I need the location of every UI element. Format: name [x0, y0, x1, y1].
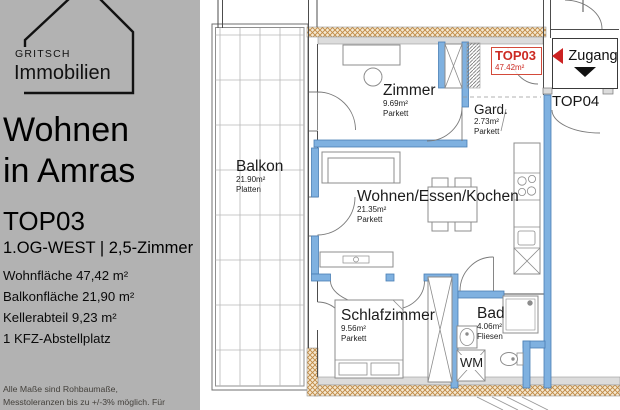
room-floor: Fliesen: [477, 332, 505, 342]
washing-machine-label: WM: [459, 355, 484, 370]
wall-hatch-left-column: [307, 348, 318, 396]
unit-tag-name: TOP03: [495, 49, 539, 63]
disclaimer-text: Alle Maße sind Rohbaumaße, Messtoleranze…: [3, 383, 165, 410]
room-label-zimmer: Zimmer 9.69m² Parkett: [383, 83, 436, 118]
room-area: 9.56m²: [341, 324, 435, 334]
sidebar: GRITSCH Immobilien Wohnen in Amras TOP03…: [0, 0, 200, 410]
floorplan: Balkon 21.90m² Platten Zimmer 9.69m² Par…: [200, 0, 620, 410]
toilet: [501, 353, 524, 366]
unit-tag-area: 47.42m²: [495, 63, 539, 72]
chair: [364, 68, 382, 86]
neighbor-unit-label: TOP04: [552, 93, 599, 110]
wall-gray-top: [318, 37, 543, 44]
brand-name-top: GRITSCH: [15, 48, 71, 60]
door-bad: [460, 257, 494, 291]
stairs-hatch: [477, 397, 548, 410]
wardrobe-zimmer: [445, 44, 462, 88]
room-area: 2.73m²: [474, 117, 508, 127]
room-label-balkon: Balkon 21.90m² Platten: [236, 159, 283, 194]
entrance-arrow-left-icon: [552, 48, 563, 64]
room-area: 21.35m²: [357, 205, 519, 215]
coat-rack: [467, 43, 480, 88]
room-label-bad: Bad 4.06m² Fliesen: [477, 306, 505, 341]
unit-tag-top03: TOP03 47.42m²: [491, 47, 542, 75]
room-name: Zimmer: [383, 83, 436, 99]
unit-facts: Wohnfläche 47,42 m² Balkonfläche 21,90 m…: [3, 265, 134, 349]
room-label-wohnen: Wohnen/Essen/Kochen 21.35m² Parkett: [357, 189, 519, 224]
room-area: 21.90m²: [236, 175, 283, 185]
project-title: Wohnen in Amras: [3, 110, 135, 192]
floorplan-sheet: GRITSCH Immobilien Wohnen in Amras TOP03…: [0, 0, 620, 410]
room-floor: Platten: [236, 185, 283, 195]
desk: [343, 45, 400, 65]
sideboard: [320, 252, 393, 267]
room-area: 4.06m²: [477, 322, 505, 332]
room-floor: Parkett: [341, 334, 435, 344]
room-name: Gard.: [474, 103, 508, 117]
room-floor: Parkett: [357, 215, 519, 225]
shower: [503, 296, 538, 333]
sink: [518, 231, 535, 245]
project-title-line2: in Amras: [3, 152, 135, 190]
wall-hatch-top: [307, 27, 546, 37]
unit-number: TOP03: [3, 206, 85, 236]
room-floor: Parkett: [474, 127, 508, 137]
wall-hatch-bottom: [314, 385, 620, 396]
down-arrow-icon: [574, 67, 596, 77]
project-title-line1: Wohnen: [3, 111, 129, 149]
balcony-outline: [212, 24, 308, 390]
fact-living-area: Wohnfläche 47,42 m²: [3, 265, 134, 286]
fact-cellar: Kellerabteil 9,23 m²: [3, 307, 134, 328]
room-name: Bad: [477, 306, 505, 322]
room-name: Schlafzimmer: [341, 308, 435, 324]
fact-balcony-area: Balkonfläche 21,90 m²: [3, 286, 134, 307]
room-floor: Parkett: [383, 109, 436, 119]
door-top04: [552, 110, 600, 133]
entrance-label: Zugang: [568, 48, 617, 64]
washbasin: [457, 326, 477, 348]
room-label-schlafzimmer: Schlafzimmer 9.56m² Parkett: [341, 308, 435, 343]
brand-name-bottom: Immobilien: [14, 62, 111, 85]
room-name: Wohnen/Essen/Kochen: [357, 189, 519, 205]
room-label-gard: Gard. 2.73m² Parkett: [474, 103, 508, 136]
door-zimmer-balcony: [318, 92, 356, 130]
balcony-tile-grid: [216, 28, 305, 386]
unit-subtitle: 1.OG-WEST | 2,5-Zimmer: [3, 239, 193, 258]
room-area: 9.69m²: [383, 99, 436, 109]
door-stairwell: [565, 0, 602, 29]
fact-parking: 1 KFZ-Abstellplatz: [3, 328, 134, 349]
room-name: Balkon: [236, 159, 283, 175]
sofa: [322, 152, 400, 183]
door-wohnen-balcony: [318, 197, 356, 235]
entrance-box: Zugang: [552, 38, 618, 89]
